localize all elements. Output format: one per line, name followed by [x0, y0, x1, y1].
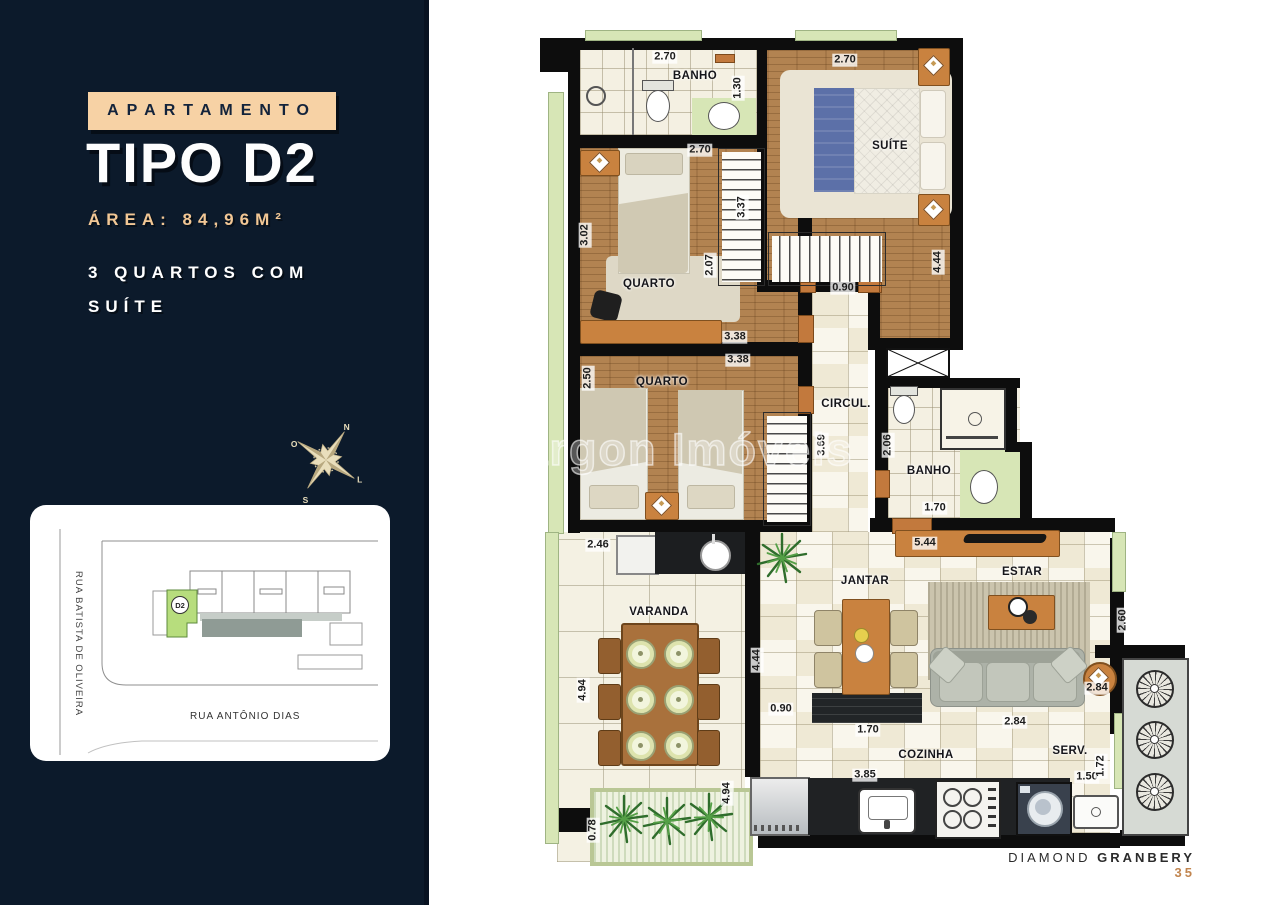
counter-sink-icon [700, 540, 731, 571]
brand-bold: GRANBERY [1097, 850, 1195, 865]
burner-icon [963, 810, 982, 829]
burner-icon [943, 810, 962, 829]
sidebar-panel: APARTAMENTO TIPO D2 ÁREA: 84,96M² 3 QUAR… [0, 0, 429, 905]
dim-estar-depth: 2.60 [1117, 607, 1130, 632]
quarto2-bed [678, 390, 744, 520]
plant-icon [754, 530, 810, 586]
stove-knobs [988, 787, 996, 827]
dim-circul-depth: 3.69 [816, 432, 829, 457]
dim-serv-depth: 1.72 [1095, 753, 1108, 778]
wall [868, 292, 880, 338]
chair [814, 652, 842, 688]
dim-quarto1-wardrobe: 2.07 [704, 252, 717, 277]
door-quarto1 [798, 315, 814, 343]
window-planter [795, 30, 897, 41]
dim-banho1-depth: 1.30 [732, 75, 745, 100]
dim-banho2-depth: 2.06 [882, 432, 895, 457]
floor-circulacao [812, 292, 868, 532]
room-label-banho2: BANHO [907, 465, 951, 477]
stove [935, 780, 1001, 839]
room-label-jantar: JANTAR [841, 575, 889, 587]
shower-partition [632, 48, 634, 135]
door-banho1 [715, 54, 735, 63]
door-jamb [875, 470, 890, 498]
door-quarto2 [798, 386, 814, 414]
chair [598, 638, 621, 674]
washer-panel [1020, 786, 1030, 793]
kitchen-sink [858, 788, 916, 834]
table-flowers [854, 628, 869, 643]
suite-bed-runner [814, 88, 854, 192]
washer-drum-inner [1035, 799, 1051, 815]
dim-cozinha-width: 3.85 [852, 769, 877, 782]
pillow [589, 485, 639, 509]
dim-banho2-width: 1.70 [922, 502, 947, 515]
chair [598, 730, 621, 766]
pillow [920, 142, 946, 190]
dim-planter-depth: 0.78 [587, 817, 600, 842]
dim-suite-width: 2.70 [832, 54, 857, 67]
sink-icon [970, 470, 998, 504]
pillow [625, 153, 683, 175]
burner-icon [963, 788, 982, 807]
sofa-cushion [986, 662, 1030, 702]
tv-icon [963, 534, 1048, 543]
plate [626, 639, 656, 669]
ac-fan-icon [1136, 773, 1174, 811]
compass-n: N [344, 422, 350, 432]
wall [1005, 382, 1017, 450]
blanket [618, 193, 688, 273]
ac-fan-icon [1136, 670, 1174, 708]
page-title: TIPO D2 [86, 130, 318, 195]
window-planter [548, 92, 564, 534]
site-map: D2 RUA BATISTA DE OLIVEIRA RUA ANTÔNIO D… [30, 505, 390, 761]
brand-regular: DIAMOND [1008, 850, 1090, 865]
burner-icon [943, 788, 962, 807]
dim-hall-width: 0.90 [768, 703, 793, 716]
chair [890, 652, 918, 688]
brochure-page: APARTAMENTO TIPO D2 ÁREA: 84,96M² 3 QUAR… [0, 0, 1280, 905]
pillow [920, 90, 946, 138]
compass-s: S [303, 495, 309, 505]
fridge-vent [754, 825, 802, 831]
blanket [678, 390, 742, 474]
ac-fan-icon [1136, 721, 1174, 759]
room-label-circul: CIRCUL. [821, 398, 870, 410]
plate [664, 639, 694, 669]
street-left-label: RUA BATISTA DE OLIVEIRA [73, 571, 84, 716]
compass-o: O [291, 439, 298, 449]
sink-basin [868, 796, 908, 820]
faucet-icon [884, 820, 890, 829]
toilet-icon [893, 395, 915, 424]
pillow [687, 485, 735, 509]
chair [697, 684, 720, 720]
chair [814, 610, 842, 646]
window-planter [585, 30, 702, 41]
washing-machine [1016, 782, 1072, 836]
shower-bench [946, 436, 998, 439]
compass-l: L [357, 475, 362, 485]
chair [697, 730, 720, 766]
floor-plan: BANHO SUÍTE QUARTO QUARTO CIRCUL. BANHO … [540, 30, 1190, 870]
floor-suite-lower [880, 280, 950, 338]
dim-jantar-width: 1.70 [855, 724, 880, 737]
blanket [580, 388, 646, 474]
shower-box [940, 388, 1006, 450]
laundry-tank [1073, 795, 1119, 829]
table-plate [855, 644, 874, 663]
faucet-icon [712, 534, 715, 544]
dim-banho1-width: 2.70 [652, 51, 677, 64]
quarto2-wardrobe [763, 412, 811, 526]
quarto1-bed [618, 148, 690, 274]
room-label-estar: ESTAR [1002, 566, 1042, 578]
drain-icon [1091, 807, 1101, 817]
footer-brand: DIAMOND GRANBERY 35 [980, 850, 1195, 880]
dim-varanda-depth2: 4.94 [721, 780, 734, 805]
plate [664, 731, 694, 761]
desk [580, 320, 722, 344]
wall [568, 135, 758, 148]
room-label-cozinha: COZINHA [898, 749, 953, 761]
jantar-sideboard [812, 693, 922, 723]
window-planter [545, 532, 559, 844]
chair [598, 684, 621, 720]
dim-estar-width: 2.84 [1084, 682, 1109, 695]
dim-varanda-top: 2.46 [585, 539, 610, 552]
wall [568, 342, 812, 356]
dim-quarto1-depth: 3.02 [579, 222, 592, 247]
wall [1095, 645, 1185, 658]
room-label-varanda: VARANDA [629, 606, 688, 618]
dim-quarto2-depth: 2.50 [582, 365, 595, 390]
unit-d2-label: D2 [175, 601, 185, 610]
window-planter [1112, 532, 1126, 592]
dim-varanda-depth: 4.94 [577, 677, 590, 702]
plate [626, 685, 656, 715]
room-label-banho1: BANHO [673, 70, 717, 82]
apartment-badge: APARTAMENTO [88, 92, 336, 130]
shower-drain-icon [586, 86, 606, 106]
fridge [750, 777, 810, 836]
room-label-suite: SUÍTE [872, 140, 908, 152]
chair [890, 610, 918, 646]
room-label-serv: SERV. [1052, 745, 1087, 757]
room-label-quarto1: QUARTO [623, 278, 675, 290]
quarto2-bed [580, 388, 648, 520]
shaft-box [886, 348, 950, 378]
dim-suite-depth2: 4.44 [932, 249, 945, 274]
shower-drain-icon [968, 412, 982, 426]
toilet-icon [646, 90, 670, 122]
dim-cozinha-top: 2.84 [1002, 716, 1027, 729]
compass-rose-icon: N O S L [283, 415, 369, 505]
sofa [930, 648, 1085, 707]
dim-quarto1-width: 2.70 [687, 144, 712, 157]
suite-wardrobe [768, 232, 886, 286]
dim-quarto1-bottom: 3.38 [722, 331, 747, 344]
dim-hall-depth: 4.44 [751, 647, 764, 672]
feature-line-2: SUÍTE [88, 297, 168, 317]
dim-quarto2-top: 3.38 [725, 354, 750, 367]
plate [664, 685, 694, 715]
feature-line-1: 3 QUARTOS COM [88, 263, 309, 283]
area-label: ÁREA: 84,96M² [88, 210, 287, 230]
dim-suite-depth: 3.37 [736, 194, 749, 219]
dim-estar-sideboard: 5.44 [912, 537, 937, 550]
room-label-quarto2: QUARTO [636, 376, 688, 388]
dim-circul-width: 0.90 [830, 282, 855, 295]
street-bottom-label: RUA ANTÔNIO DIAS [190, 709, 300, 722]
plate [626, 731, 656, 761]
sink-icon [708, 102, 740, 130]
page-number: 35 [1175, 865, 1195, 880]
location-map-card: D2 RUA BATISTA DE OLIVEIRA RUA ANTÔNIO D… [30, 505, 390, 761]
decor-bowl [1023, 610, 1037, 624]
wall [568, 38, 580, 533]
chair [697, 638, 720, 674]
varanda-cabinet [616, 535, 659, 575]
